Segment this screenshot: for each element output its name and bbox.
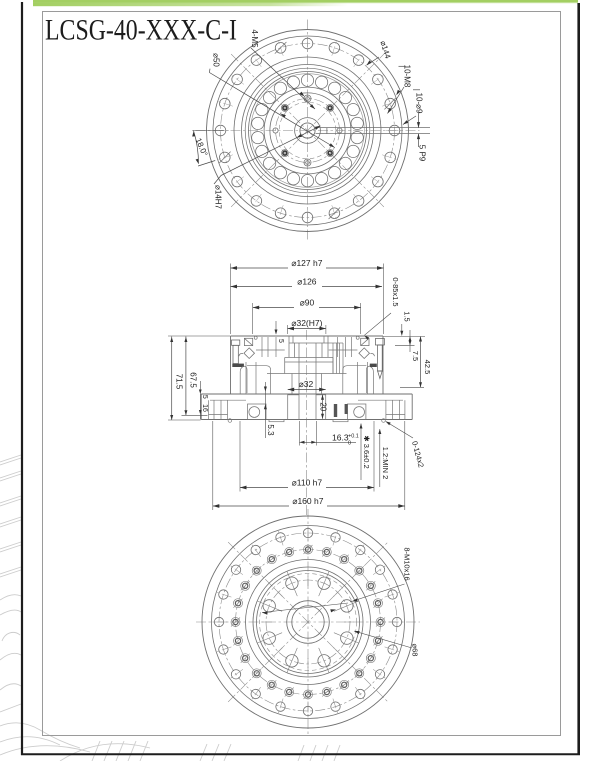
svg-text:0-85x1.5: 0-85x1.5	[391, 277, 400, 306]
svg-text:⌀126: ⌀126	[297, 277, 317, 287]
svg-text:LCSG-40-XXX-C-I: LCSG-40-XXX-C-I	[45, 14, 237, 47]
svg-text:16.3: 16.3	[332, 432, 349, 442]
svg-text:⌀14H7: ⌀14H7	[214, 185, 223, 209]
svg-text:✱ 3.6±0.2: ✱ 3.6±0.2	[362, 435, 371, 468]
svg-text:+0.1: +0.1	[348, 433, 359, 439]
svg-text:5: 5	[277, 339, 284, 343]
svg-text:10-⌀9: 10-⌀9	[415, 93, 424, 114]
svg-text:⌀50: ⌀50	[212, 53, 221, 67]
svg-text:1.2:MIN 2: 1.2:MIN 2	[381, 447, 390, 480]
svg-text:5: 5	[201, 395, 208, 399]
svg-text:⌀90: ⌀90	[300, 298, 315, 308]
svg-text:⌀110 h7: ⌀110 h7	[292, 478, 323, 488]
svg-text:7.5: 7.5	[411, 351, 420, 361]
svg-text:1.5: 1.5	[403, 311, 412, 321]
svg-text:71.5: 71.5	[175, 374, 184, 390]
svg-text:⌀68: ⌀68	[411, 644, 420, 657]
svg-text:67.5: 67.5	[189, 372, 198, 388]
svg-text:⌀160 h7: ⌀160 h7	[292, 496, 323, 506]
svg-text:20: 20	[318, 402, 327, 411]
svg-text:10-M8: 10-M8	[402, 65, 411, 88]
svg-text:⌀127 h7: ⌀127 h7	[291, 258, 322, 268]
svg-text:8-M10x16: 8-M10x16	[403, 547, 412, 580]
svg-text:5.3: 5.3	[266, 424, 275, 436]
svg-text:4-M5: 4-M5	[250, 29, 259, 48]
svg-text:42.5: 42.5	[423, 360, 432, 375]
svg-text:⌀32: ⌀32	[299, 379, 314, 389]
svg-text:0: 0	[348, 441, 351, 447]
svg-text:16: 16	[201, 404, 208, 412]
svg-text:⌀32(H7): ⌀32(H7)	[291, 318, 322, 328]
svg-text:5 P9: 5 P9	[418, 145, 427, 162]
